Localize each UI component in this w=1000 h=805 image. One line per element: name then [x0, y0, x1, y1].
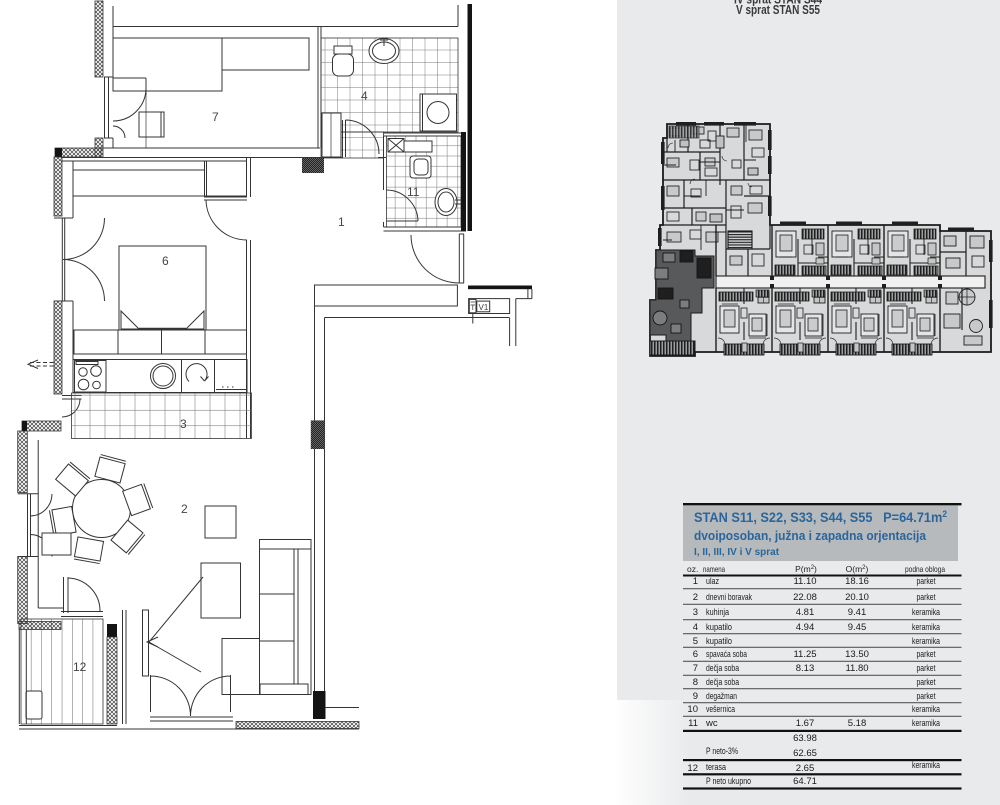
svg-text:7: 7: [693, 663, 698, 674]
svg-text:11: 11: [407, 185, 420, 199]
svg-text:11.80: 11.80: [845, 663, 868, 674]
svg-text:6: 6: [693, 649, 698, 660]
svg-text:1: 1: [693, 576, 698, 587]
svg-text:9: 9: [693, 691, 698, 702]
svg-text:podna obloga: podna obloga: [905, 564, 945, 574]
svg-text:kupatilo: kupatilo: [706, 622, 732, 633]
svg-text:4.94: 4.94: [796, 622, 815, 633]
svg-text:2.65: 2.65: [796, 763, 815, 774]
svg-text:keramika: keramika: [912, 704, 941, 715]
svg-text:O(m2): O(m2): [846, 564, 869, 574]
svg-text:namena: namena: [703, 564, 725, 574]
svg-text:11: 11: [688, 718, 698, 729]
svg-text:4: 4: [361, 89, 368, 103]
svg-text:spavaća soba: spavaća soba: [706, 649, 748, 660]
svg-text:parket: parket: [917, 691, 936, 702]
svg-text:5: 5: [693, 636, 698, 647]
svg-text:8: 8: [693, 677, 698, 688]
svg-text:dečja soba: dečja soba: [706, 663, 740, 674]
svg-text:3: 3: [693, 607, 698, 618]
svg-text:10: 10: [687, 704, 698, 715]
svg-text:1.67: 1.67: [796, 718, 815, 729]
svg-text:keramika: keramika: [912, 607, 941, 618]
svg-text:11.25: 11.25: [793, 649, 816, 660]
svg-text:keramika: keramika: [912, 622, 941, 633]
svg-text:9.45: 9.45: [848, 622, 867, 633]
svg-text:12: 12: [687, 763, 698, 774]
svg-text:keramika: keramika: [912, 718, 941, 729]
svg-text:20.10: 20.10: [845, 592, 869, 603]
svg-text:parket: parket: [917, 663, 936, 674]
svg-text:6: 6: [162, 254, 169, 268]
svg-text:1: 1: [338, 215, 345, 229]
svg-text:V sprat STAN S55: V sprat STAN S55: [736, 3, 820, 17]
svg-text:63.98: 63.98: [793, 733, 817, 744]
svg-text:4: 4: [693, 622, 698, 633]
svg-text:degažman: degažman: [706, 691, 737, 702]
svg-text:wc: wc: [705, 718, 718, 729]
svg-text:3: 3: [180, 417, 187, 431]
svg-text:13.50: 13.50: [845, 649, 869, 660]
svg-text:8.13: 8.13: [796, 663, 815, 674]
svg-text:P neto ukupno: P neto ukupno: [706, 776, 751, 787]
svg-text:parket: parket: [917, 576, 936, 587]
svg-text:4.81: 4.81: [796, 607, 815, 618]
svg-text:5.18: 5.18: [848, 718, 867, 729]
svg-text:ulaz: ulaz: [706, 576, 719, 587]
svg-text:STAN S11, S22, S33, S44, S55: STAN S11, S22, S33, S44, S55 P=64.71m2: [694, 509, 947, 525]
svg-text:64.71: 64.71: [793, 776, 817, 787]
svg-text:keramika: keramika: [912, 636, 941, 647]
svg-text:11.10: 11.10: [793, 576, 816, 587]
svg-text:2: 2: [693, 592, 698, 603]
svg-text:dnevni boravak: dnevni boravak: [706, 592, 752, 603]
svg-text:V1: V1: [479, 303, 489, 312]
svg-text:P neto-3%: P neto-3%: [706, 746, 738, 757]
svg-text:P(m2): P(m2): [795, 564, 817, 574]
svg-text:keramika: keramika: [912, 760, 941, 771]
svg-text:kuhinja: kuhinja: [706, 607, 730, 618]
svg-text:dvoiposoban, južna i zapadna o: dvoiposoban, južna i zapadna orjentacija: [694, 528, 927, 543]
svg-text:2: 2: [181, 502, 188, 516]
svg-text:parket: parket: [917, 677, 936, 688]
svg-text:62.65: 62.65: [793, 748, 817, 759]
svg-text:parket: parket: [917, 649, 936, 660]
svg-text:22.08: 22.08: [793, 592, 817, 603]
svg-text:12: 12: [73, 660, 87, 674]
svg-text:vešernica: vešernica: [706, 704, 736, 715]
svg-text:oz.: oz.: [687, 564, 698, 574]
svg-text:9.41: 9.41: [848, 607, 867, 618]
svg-text:I, II, III, IV i V sprat: I, II, III, IV i V sprat: [694, 547, 780, 558]
svg-text:terasa: terasa: [706, 762, 727, 773]
svg-text:kupatilo: kupatilo: [706, 636, 732, 647]
svg-text:dečja soba: dečja soba: [706, 677, 740, 688]
svg-text:18.16: 18.16: [845, 576, 869, 587]
svg-text:7: 7: [212, 110, 219, 124]
svg-text:parket: parket: [917, 592, 936, 603]
